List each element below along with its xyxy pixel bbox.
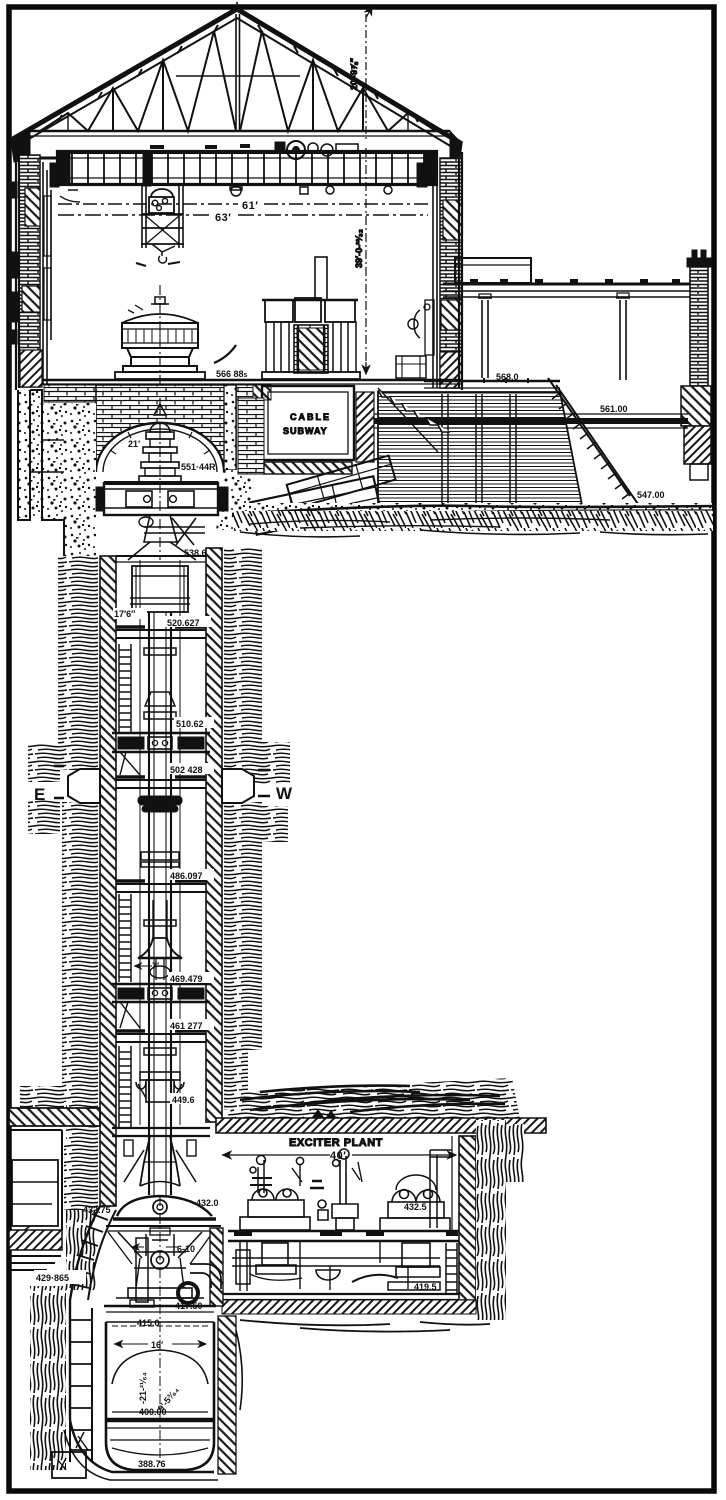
svg-text:432.5: 432.5 [404, 1202, 427, 1212]
svg-text:566 88s: 566 88s [216, 369, 248, 379]
svg-text:39′-0-²²⁄₃₂: 39′-0-²²⁄₃₂ [354, 229, 364, 268]
svg-text:449.6: 449.6 [172, 1095, 195, 1105]
svg-text:6-10: 6-10 [177, 1244, 195, 1254]
svg-text:-21-²¹⁄₆₄: -21-²¹⁄₆₄ [138, 1372, 148, 1404]
svg-text:520.627: 520.627 [167, 618, 200, 628]
svg-text:SUBWAY: SUBWAY [283, 426, 328, 436]
svg-text:61′: 61′ [242, 200, 258, 212]
svg-text:502 428: 502 428 [170, 765, 203, 775]
svg-text:63′: 63′ [215, 212, 231, 224]
svg-text:510.62: 510.62 [176, 719, 204, 729]
svg-text:486.097: 486.097 [170, 871, 203, 881]
svg-text:538.6: 538.6 [184, 548, 207, 558]
svg-text:21′: 21′ [128, 439, 140, 449]
svg-text:417.50: 417.50 [175, 1301, 203, 1311]
svg-text:EXCITER PLANT: EXCITER PLANT [289, 1137, 383, 1149]
svg-text:432.75: 432.75 [83, 1205, 111, 1215]
svg-text:568.0: 568.0 [496, 372, 519, 382]
svg-text:419.5: 419.5 [414, 1282, 437, 1292]
svg-text:7′: 7′ [152, 961, 159, 971]
svg-text:432.0: 432.0 [196, 1198, 219, 1208]
svg-text:40′: 40′ [330, 1150, 346, 1162]
svg-text:388.76: 388.76 [138, 1459, 166, 1469]
svg-text:E: E [34, 785, 45, 804]
svg-text:461 277: 461 277 [170, 1021, 203, 1031]
svg-text:CABLE: CABLE [290, 412, 331, 422]
svg-text:415.0: 415.0 [137, 1318, 160, 1328]
svg-text:20′-9⅞″: 20′-9⅞″ [349, 57, 359, 90]
svg-text:16′: 16′ [151, 1340, 163, 1350]
svg-text:469.479: 469.479 [170, 974, 203, 984]
svg-text:547.00: 547.00 [637, 490, 665, 500]
svg-text:17′6″: 17′6″ [114, 609, 136, 619]
svg-text:W: W [276, 784, 293, 803]
svg-text:429·865: 429·865 [36, 1273, 69, 1283]
svg-text:561.00: 561.00 [600, 404, 628, 414]
svg-text:551·44R: 551·44R [181, 462, 216, 472]
